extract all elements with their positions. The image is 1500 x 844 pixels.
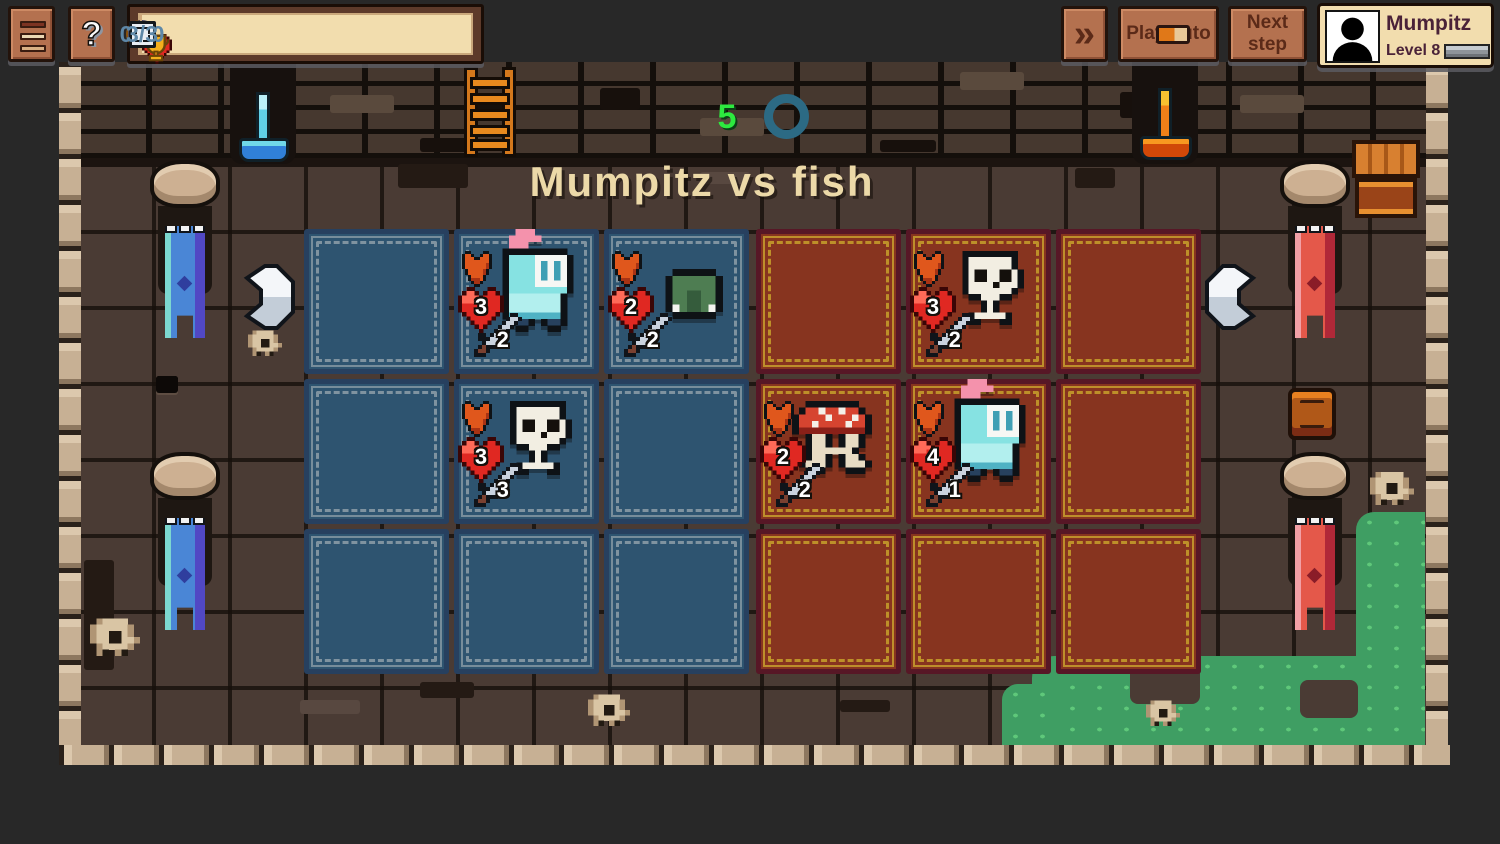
resources-bar: 0 5 0/10 1 (127, 4, 484, 64)
fast-forward-icon: » (1074, 13, 1095, 56)
blue-cell-r2c2[interactable] (604, 529, 749, 674)
attack-badge: 2 (776, 463, 824, 509)
auto-toggle[interactable] (1156, 25, 1190, 44)
battle-title: Mumpitz vs fish (0, 158, 1404, 206)
blue-cell-r2c1[interactable] (454, 529, 599, 674)
attack-value: 1 (949, 479, 961, 501)
bottom-border-bricks (59, 745, 1450, 765)
hamburger-icon (20, 45, 46, 52)
rerolls-value: 3/3 (126, 21, 158, 48)
drain-grate (156, 376, 220, 442)
attack-value: 3 (497, 479, 509, 501)
barrel-icon (1288, 388, 1336, 440)
orange-torch-icon (1158, 88, 1172, 142)
player-profile[interactable]: Mumpitz Level 8 (1317, 3, 1494, 68)
player-name: Mumpitz (1386, 12, 1471, 36)
attack-value: 2 (949, 329, 961, 351)
game-screen: 5 Mumpitz vs fish (0, 0, 1500, 844)
blue-cell-r0c0[interactable] (304, 229, 449, 374)
hamburger-icon (20, 33, 46, 40)
attack-badge: 2 (926, 313, 974, 359)
attack-value: 2 (497, 329, 509, 351)
blue-unit-slime[interactable]: 22 (604, 229, 749, 374)
attack-value: 2 (799, 479, 811, 501)
moss-patch-small (1002, 684, 1064, 745)
round-counter: 5 (700, 98, 754, 137)
play-auto-button[interactable]: Play auto (1118, 6, 1219, 62)
player-level: Level 8 (1386, 42, 1440, 60)
attack-badge: 2 (624, 313, 672, 359)
menu-button[interactable] (8, 6, 55, 62)
right-border-bricks (1426, 62, 1448, 745)
orange-torch-basin (1140, 136, 1192, 160)
red-unit-skeleton[interactable]: 32 (906, 229, 1051, 374)
attack-value: 2 (647, 329, 659, 351)
question-mark-icon: ? (81, 15, 102, 54)
round-ring-icon (764, 94, 809, 139)
hamburger-icon (20, 21, 46, 28)
help-button[interactable]: ? (68, 6, 115, 62)
stat-rerolls: 3/3 (140, 15, 142, 53)
red-cell-r2c0[interactable] (756, 529, 901, 674)
red-cell-r0c0[interactable] (756, 229, 901, 374)
next-step-label: Next step (1231, 12, 1304, 56)
blue-unit-knight[interactable]: 32 (454, 229, 599, 374)
red-cell-r2c2[interactable] (1056, 529, 1201, 674)
pillar-cap (1280, 452, 1350, 500)
next-step-button[interactable]: Next step (1228, 6, 1307, 62)
red-unit-knight[interactable]: 41 (906, 379, 1051, 524)
level-progress-bar (1444, 44, 1490, 59)
moss-vine (1356, 512, 1425, 662)
blue-cell-r1c0[interactable] (304, 379, 449, 524)
avatar (1325, 10, 1380, 63)
red-unit-mushroom[interactable]: 22 (756, 379, 901, 524)
red-cell-r2c1[interactable] (906, 529, 1051, 674)
attack-badge: 2 (474, 313, 522, 359)
blue-side-arrow-icon (242, 264, 298, 330)
red-cell-r0c2[interactable] (1056, 229, 1201, 374)
red-cell-r1c2[interactable] (1056, 379, 1201, 524)
pillar-cap (150, 452, 220, 500)
blue-cell-r1c2[interactable] (604, 379, 749, 524)
fast-forward-button[interactable]: » (1061, 6, 1108, 62)
red-side-arrow-icon (1202, 264, 1258, 330)
blue-cell-r2c0[interactable] (304, 529, 449, 674)
attack-badge: 1 (926, 463, 974, 509)
ladder-icon (467, 70, 513, 154)
attack-badge: 3 (474, 463, 522, 509)
blue-unit-skeleton[interactable]: 33 (454, 379, 599, 524)
